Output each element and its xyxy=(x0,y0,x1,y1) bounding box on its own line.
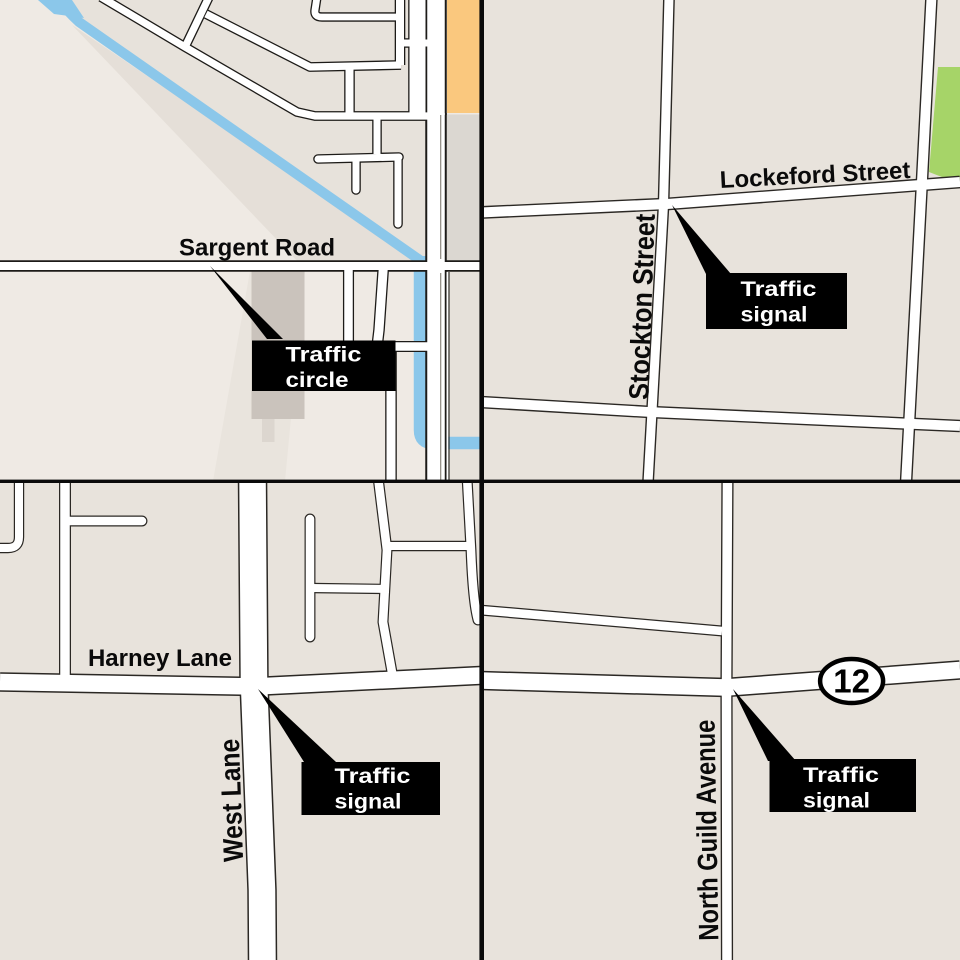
svg-text:Traffic: Traffic xyxy=(286,344,362,367)
svg-text:signal: signal xyxy=(335,791,402,814)
svg-text:12: 12 xyxy=(833,663,870,700)
svg-text:Traffic: Traffic xyxy=(335,765,411,788)
svg-text:West Lane: West Lane xyxy=(214,738,249,862)
svg-text:circle: circle xyxy=(286,369,349,392)
svg-text:signal: signal xyxy=(803,790,870,813)
svg-text:Stockton Street: Stockton Street xyxy=(623,213,660,400)
svg-text:North Guild Avenue: North Guild Avenue xyxy=(690,719,725,941)
svg-text:Traffic: Traffic xyxy=(803,764,879,787)
svg-text:Sargent Road: Sargent Road xyxy=(179,235,335,262)
svg-text:signal: signal xyxy=(741,304,808,327)
svg-text:Traffic: Traffic xyxy=(741,278,817,301)
svg-text:Harney Lane: Harney Lane xyxy=(88,645,232,672)
